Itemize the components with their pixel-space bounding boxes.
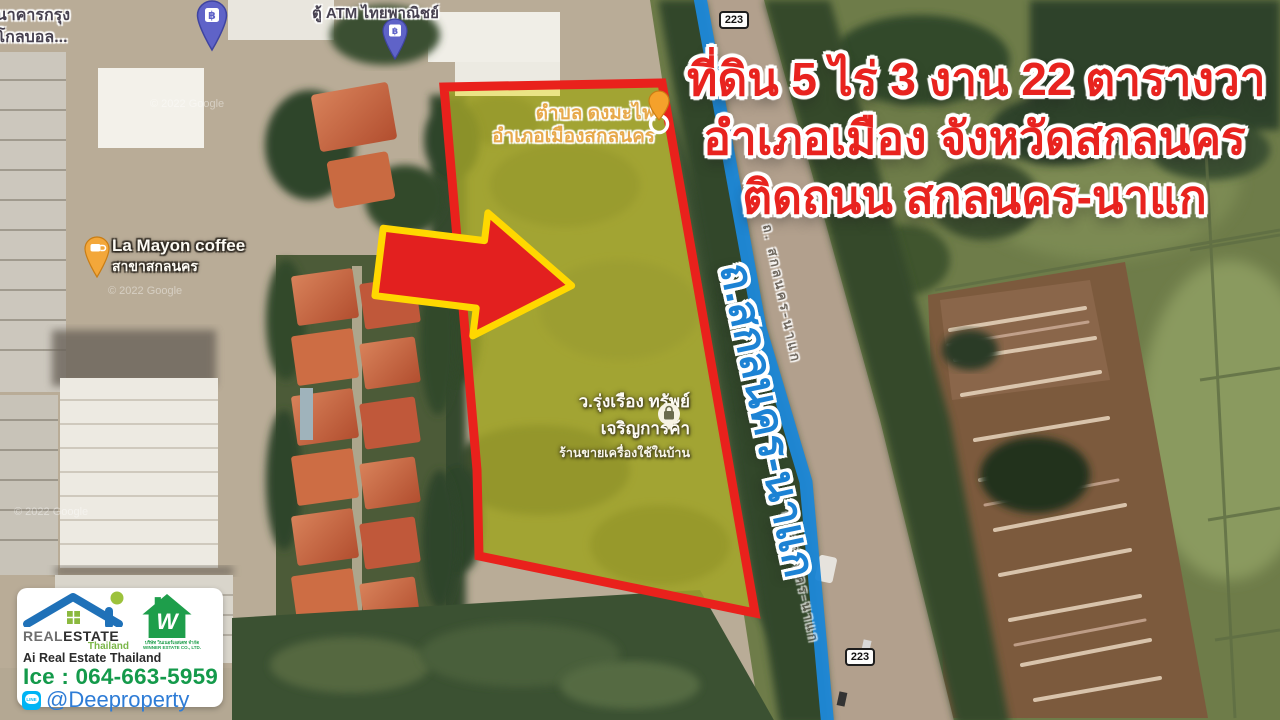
baht-icon: ฿ [392, 26, 398, 36]
line-id: @Deeproperty [46, 687, 189, 713]
arrow-pointer [364, 190, 591, 364]
line-icon-label: LINE [25, 694, 39, 704]
land-listing-map-screenshot: © 2022 Google © 2022 Google © 2022 Googl… [0, 0, 1280, 720]
poi-bank-label-line2[interactable]: มโกลบอล... [0, 25, 68, 50]
shop-line3: ร้านขายเครื่องใช้ในบ้าน [500, 443, 690, 463]
winner-letter: W [156, 609, 179, 634]
map-watermark: © 2022 Google [108, 285, 182, 297]
subdistrict-pin-icon[interactable] [644, 90, 674, 136]
bank-pin-icon[interactable]: ฿ [196, 0, 228, 52]
map-watermark: © 2022 Google [14, 506, 88, 518]
line-contact: LINE @Deeproperty [22, 687, 189, 713]
route-shield-223-top: 223 [719, 11, 749, 29]
line-icon: LINE [22, 691, 41, 710]
headline-line3: ติดถนน สกลนคร-นาแก [687, 168, 1262, 227]
coffee-pin-icon[interactable] [84, 236, 110, 278]
headline-line2: อำเภอเมือง จังหวัดสกลนคร [687, 109, 1262, 168]
poi-coffee-label[interactable]: La Mayon coffee สาขาสกลนคร [112, 236, 245, 278]
coffee-line2: สาขาสกลนคร [112, 256, 245, 278]
route-shield-223-bottom: 223 [845, 648, 875, 666]
headline: ที่ดิน 5 ไร่ 3 งาน 22 ตารางวา อำเภอเมือง… [687, 50, 1262, 227]
route-number: 223 [851, 651, 869, 663]
winner-estate-logo-text: บริษัท วินเนอร์เอสเตท จำกัด WINNER ESTAT… [129, 640, 215, 650]
baht-icon: ฿ [208, 10, 216, 22]
winner-estate-logo-icon: W [141, 593, 193, 639]
route-number: 223 [725, 14, 743, 26]
poi-atm-label[interactable]: ตู้ ATM ไทยพาณิชย์ [312, 1, 439, 25]
ai-realestate-logo-icon [21, 591, 127, 627]
headline-line1: ที่ดิน 5 ไร่ 3 งาน 22 ตารางวา [687, 50, 1262, 109]
warehouse-mid-left [52, 330, 218, 568]
shop-pin-icon[interactable] [656, 402, 682, 434]
atm-pin-icon[interactable]: ฿ [382, 18, 408, 60]
subdistrict-line2: อำเภอเมืองสกลนคร [455, 125, 655, 148]
map-watermark: © 2022 Google [150, 98, 224, 110]
poi-subdistrict-label[interactable]: ตำบล ดงมะไฟ อำเภอเมืองสกลนคร [455, 102, 655, 148]
subdistrict-line1: ตำบล ดงมะไฟ [455, 102, 655, 125]
winner-line2: WINNER ESTATE CO., LTD. [129, 645, 215, 650]
branding-card: REALESTATE Thailand Ai Real Estate Thail… [17, 588, 223, 707]
warehouse-far-left [0, 52, 66, 575]
coffee-line1: La Mayon coffee [112, 236, 245, 256]
brand-subtitle: Ai Real Estate Thailand [23, 651, 161, 665]
